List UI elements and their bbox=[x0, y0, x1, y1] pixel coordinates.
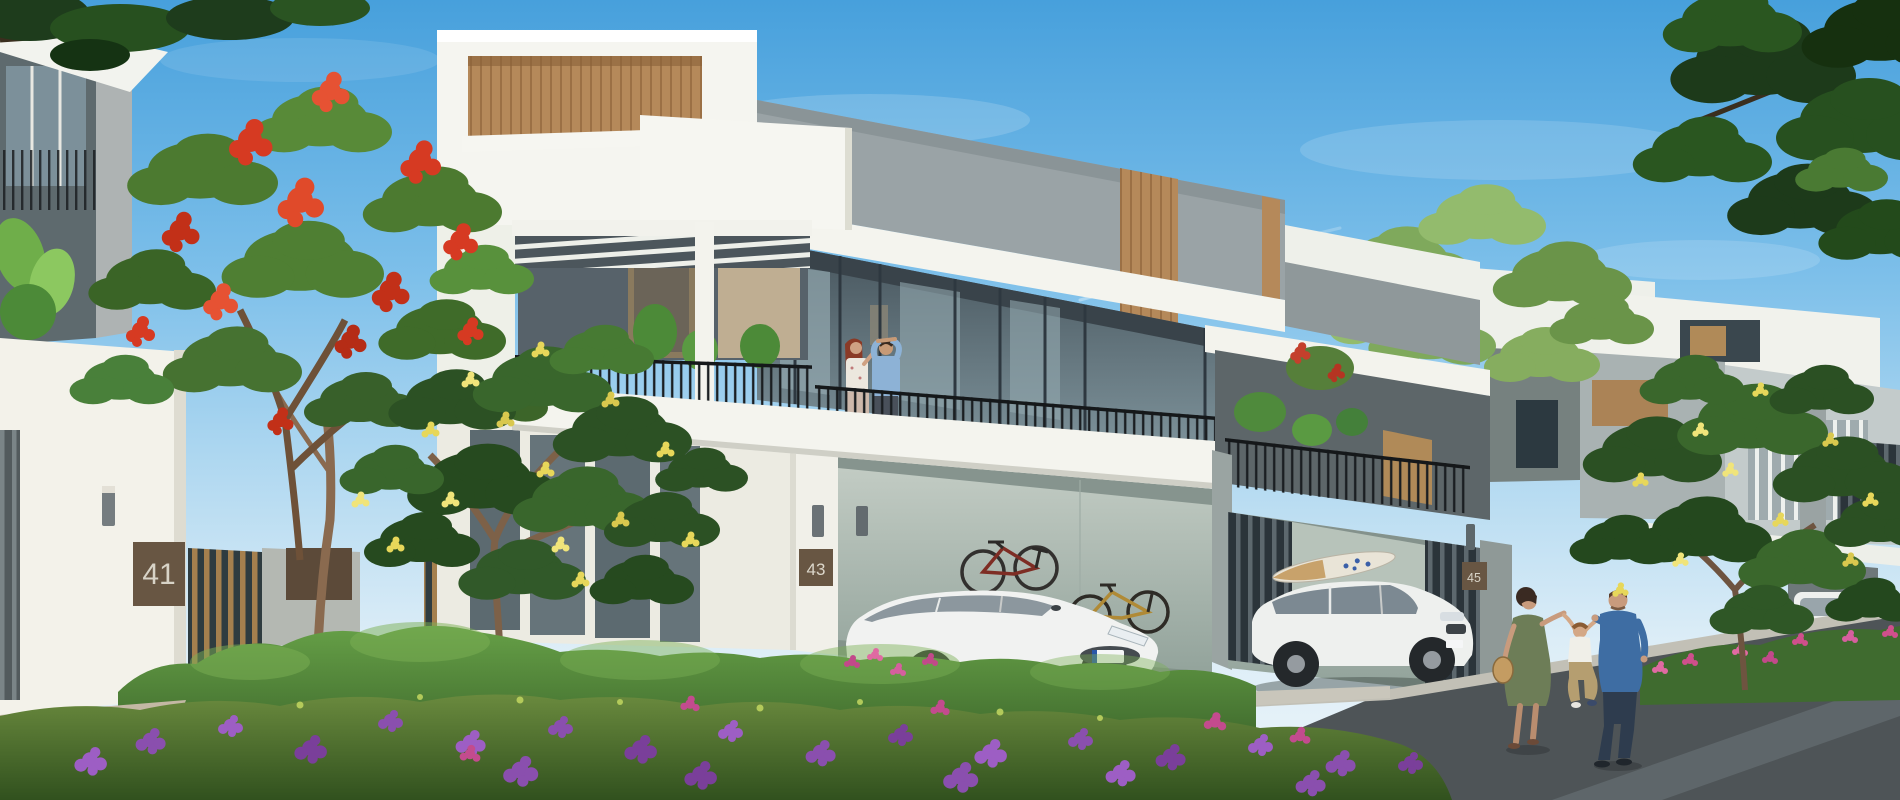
architectural-rendering: 41 bbox=[0, 0, 1900, 800]
house-number-41: 41 bbox=[142, 558, 175, 591]
suv-license-plate bbox=[1446, 640, 1463, 648]
pergola-slats bbox=[515, 236, 810, 268]
address-plaque-45: 45 bbox=[1462, 562, 1487, 590]
wall-lamp-43 bbox=[812, 505, 824, 537]
address-plaque-43: 43 bbox=[799, 549, 833, 586]
terrace-parapet bbox=[640, 115, 852, 230]
wall-lamp-45 bbox=[1466, 524, 1475, 550]
wall-lamp-43-inner bbox=[856, 506, 868, 536]
straw-basket bbox=[1493, 657, 1513, 683]
house-number-43: 43 bbox=[807, 560, 826, 579]
address-plaque-41: 41 bbox=[133, 542, 185, 606]
rendered-scene: 41 bbox=[0, 0, 1900, 800]
house-number-45: 45 bbox=[1467, 571, 1481, 585]
